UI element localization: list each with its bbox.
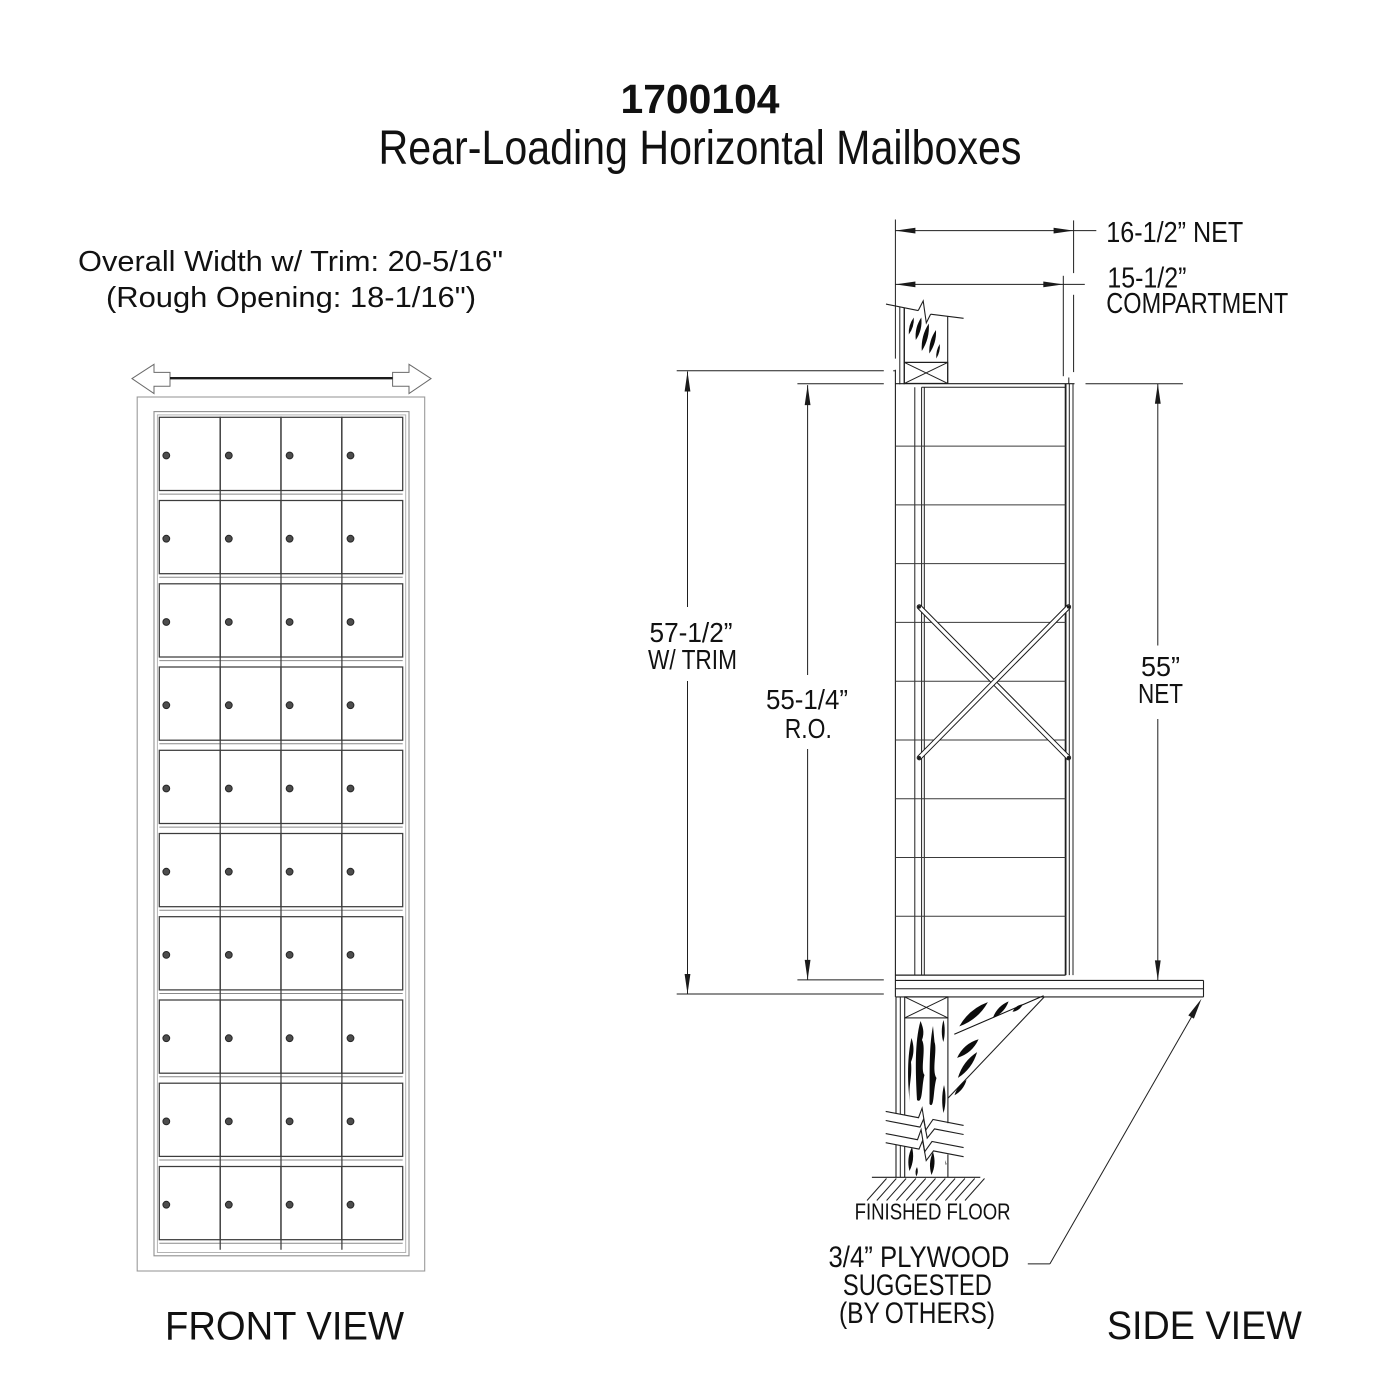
svg-text:FRONT VIEW: FRONT VIEW	[165, 1304, 405, 1348]
svg-text:SIDE VIEW: SIDE VIEW	[1107, 1304, 1303, 1348]
svg-text:16-1/2” NET: 16-1/2” NET	[1106, 217, 1243, 249]
svg-text:FINISHED FLOOR: FINISHED FLOOR	[855, 1198, 1011, 1224]
svg-text:W/ TRIM: W/ TRIM	[648, 644, 737, 675]
svg-text:Rear-Loading Horizontal Mailbo: Rear-Loading Horizontal Mailboxes	[379, 122, 1022, 175]
svg-text:(BY OTHERS): (BY OTHERS)	[839, 1297, 995, 1330]
svg-text:(Rough Opening: 18-1/16"): (Rough Opening: 18-1/16")	[106, 282, 476, 314]
svg-text:Overall Width w/ Trim: 20-5/16: Overall Width w/ Trim: 20-5/16"	[78, 246, 503, 278]
svg-text:R.O.: R.O.	[785, 713, 832, 744]
svg-text:NET: NET	[1138, 678, 1183, 709]
svg-text:1700104: 1700104	[621, 76, 780, 122]
svg-text:COMPARTMENT: COMPARTMENT	[1106, 288, 1288, 320]
svg-text:55-1/4”: 55-1/4”	[766, 684, 848, 715]
